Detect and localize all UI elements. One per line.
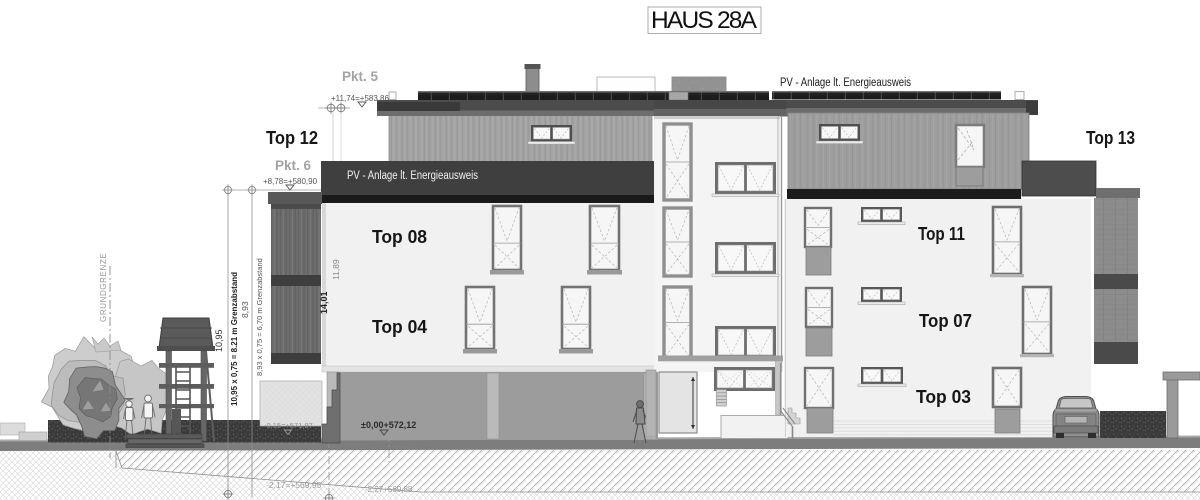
svg-text:-2,17=+569,95: -2,17=+569,95: [266, 480, 322, 490]
svg-text:Pkt. 6: Pkt. 6: [275, 158, 312, 173]
svg-text:PV - Anlage lt. Energieausweis: PV - Anlage lt. Energieausweis: [347, 170, 478, 182]
svg-text:-2,27+569,88: -2,27+569,88: [365, 485, 413, 494]
svg-text:Top 04: Top 04: [372, 317, 427, 337]
svg-text:-0,15=+571,97: -0,15=+571,97: [264, 421, 313, 430]
svg-text:Top 03: Top 03: [916, 387, 971, 407]
svg-text:PV - Anlage lt. Energieausweis: PV - Anlage lt. Energieausweis: [780, 77, 911, 89]
svg-text:Top 07: Top 07: [919, 311, 972, 331]
svg-text:8,93 x 0,75 = 6,70 m Grenzabst: 8,93 x 0,75 = 6,70 m Grenzabstand: [255, 258, 264, 376]
svg-text:Top 08: Top 08: [372, 227, 427, 247]
svg-text:14,01: 14,01: [319, 291, 329, 314]
svg-text:HAUS 28A: HAUS 28A: [651, 7, 758, 34]
svg-text:8,93: 8,93: [240, 301, 250, 318]
svg-text:Pkt. 5: Pkt. 5: [342, 69, 379, 84]
svg-text:11,89: 11,89: [331, 259, 341, 280]
svg-text:Top 13: Top 13: [1086, 128, 1135, 148]
svg-text:Top 11: Top 11: [918, 224, 965, 244]
svg-text:±0,00+572,12: ±0,00+572,12: [361, 420, 416, 430]
svg-text:GRUNDGRENZE: GRUNDGRENZE: [99, 253, 108, 322]
svg-text:10,95: 10,95: [214, 329, 224, 352]
svg-text:10,95 x 0,75 = 8.21 m Grenzabs: 10,95 x 0,75 = 8.21 m Grenzabstand: [230, 272, 239, 406]
svg-text:Top 12: Top 12: [266, 128, 318, 148]
